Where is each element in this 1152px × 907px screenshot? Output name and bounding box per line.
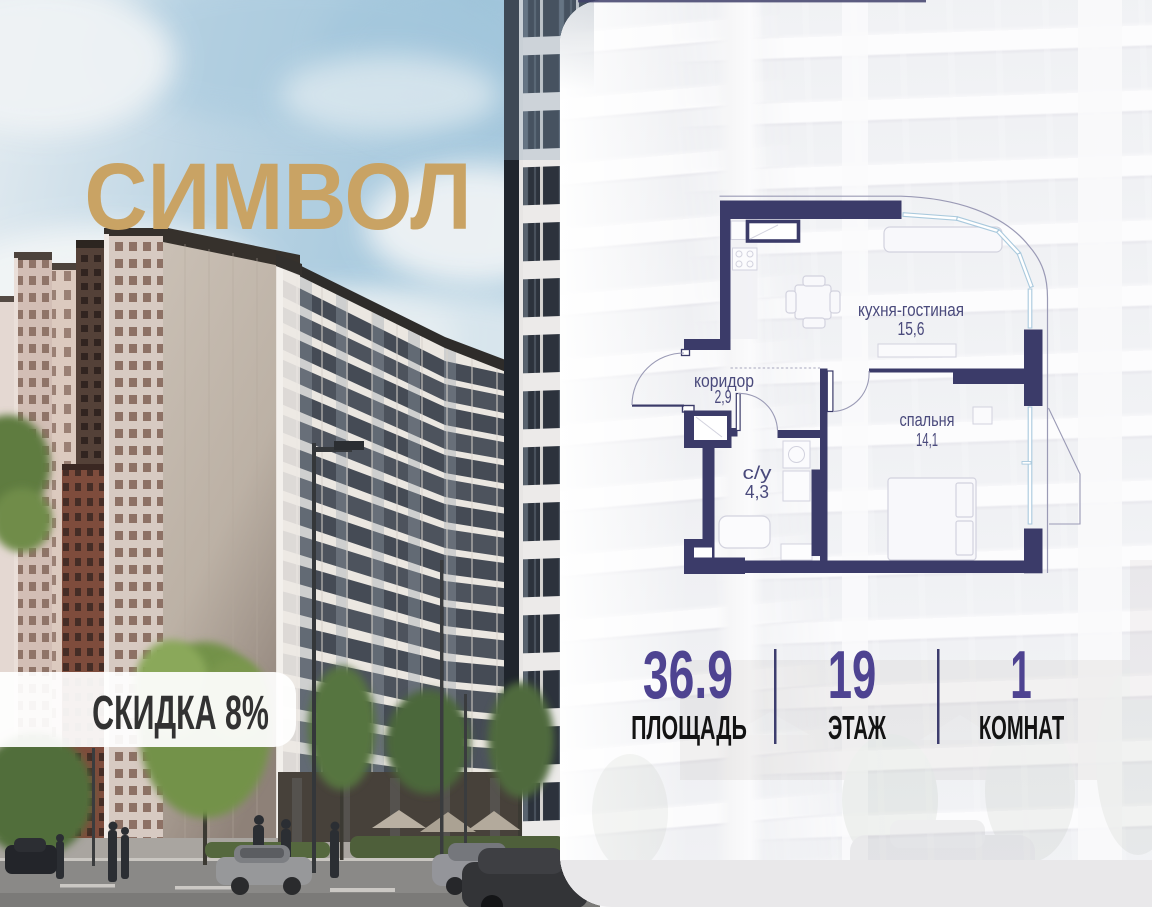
- svg-text:ЭТАЖ: ЭТАЖ: [828, 709, 886, 746]
- svg-text:19: 19: [828, 639, 877, 714]
- svg-text:36.9: 36.9: [643, 639, 733, 714]
- svg-text:СИМВОЛ: СИМВОЛ: [84, 145, 471, 250]
- svg-text:1: 1: [1010, 637, 1031, 713]
- svg-text:СКИДКА 8%: СКИДКА 8%: [92, 685, 269, 740]
- svg-text:ПЛОЩАДЬ: ПЛОЩАДЬ: [631, 709, 747, 746]
- svg-text:КОМНАТ: КОМНАТ: [979, 709, 1065, 746]
